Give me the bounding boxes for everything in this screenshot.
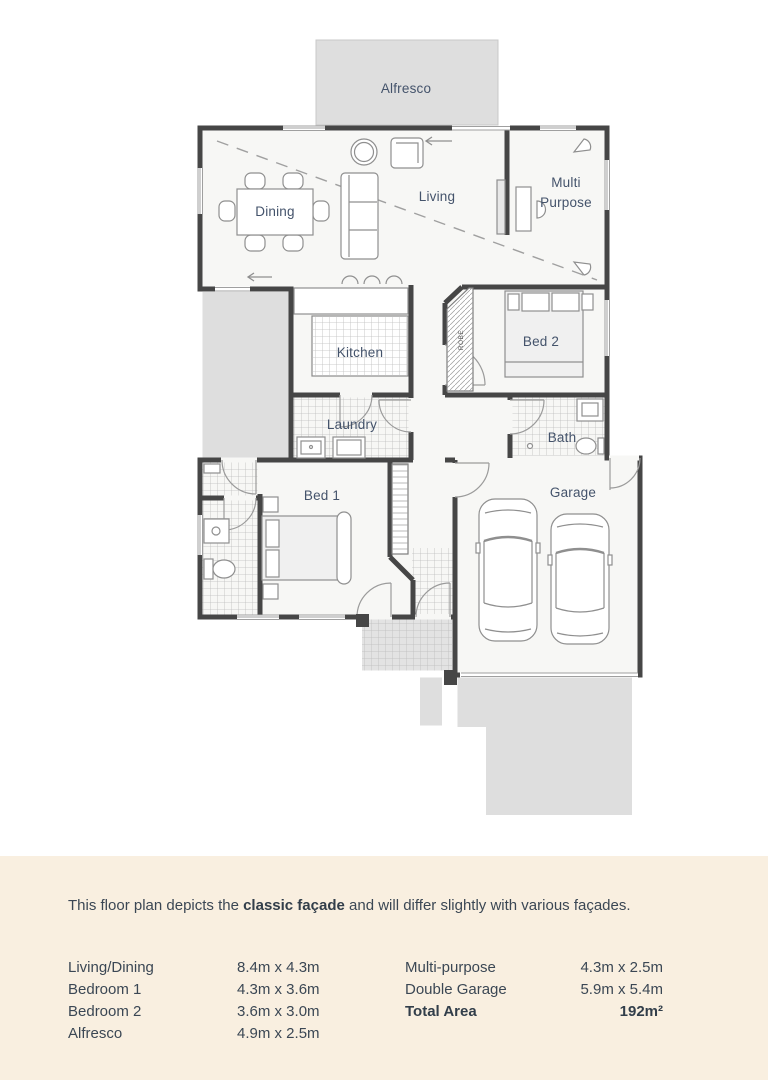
page: { "floorplan": { "rooms": { "alfresco": … <box>0 0 768 1080</box>
dimension-row-living-dining: Living/Dining 8.4m x 4.3m <box>68 957 320 979</box>
linen-cupboard <box>392 464 408 554</box>
dimension-value: 4.3m x 3.6m <box>237 979 320 1001</box>
dimension-label: Bedroom 1 <box>68 979 237 1001</box>
label-dining: Dining <box>255 204 294 219</box>
dimension-value: 3.6m x 3.0m <box>237 1001 320 1023</box>
disclaimer-highlight: classic façade <box>243 897 345 914</box>
dimension-label-total-area: Total Area <box>405 1001 520 1023</box>
porch-pier-1 <box>356 614 369 627</box>
dimension-row-total-area: Total Area 192m² <box>405 1001 663 1023</box>
dimension-row-alfresco: Alfresco 4.9m x 2.5m <box>68 1023 320 1045</box>
label-kitchen: Kitchen <box>337 345 383 360</box>
porch-area <box>362 620 452 671</box>
dimensions-left-column: Living/Dining 8.4m x 4.3m Bedroom 1 4.3m… <box>68 957 320 1045</box>
label-multi: Multi <box>551 175 581 190</box>
laundry-tub <box>297 437 325 458</box>
path-area <box>420 678 442 726</box>
washing-machine <box>333 437 365 458</box>
side-yard-area <box>203 292 289 458</box>
window-top-dining <box>283 126 325 131</box>
dimension-label: Alfresco <box>68 1023 237 1045</box>
sofa <box>341 173 378 259</box>
garage-door-opening <box>460 673 638 678</box>
label-bed2: Bed 2 <box>523 334 559 349</box>
window-ensuite-left <box>198 515 203 555</box>
dimension-row-multi-purpose: Multi-purpose 4.3m x 2.5m <box>405 957 663 979</box>
label-bath: Bath <box>548 430 577 445</box>
armchair <box>391 138 423 168</box>
dimension-label: Double Garage <box>405 979 520 1001</box>
label-laundry: Laundry <box>327 417 377 432</box>
vestibule-shelf <box>204 464 220 473</box>
label-living: Living <box>419 189 455 204</box>
dimension-value: 5.9m x 5.4m <box>520 979 663 1001</box>
dimension-label: Multi-purpose <box>405 957 520 979</box>
floor-plan-drawing: Alfresco Dining Living Multi Purpose Kit… <box>0 0 768 856</box>
label-alfresco: Alfresco <box>381 81 431 96</box>
dimension-value: 4.3m x 2.5m <box>520 957 663 979</box>
ensuite-toilet <box>204 559 235 579</box>
disclaimer-suffix: and will differ slightly with various fa… <box>345 897 631 914</box>
bath-toilet <box>576 438 604 454</box>
disclaimer-prefix: This floor plan depicts the <box>68 897 243 914</box>
window-dining-left <box>198 168 203 214</box>
dimension-label: Living/Dining <box>68 957 237 979</box>
window-bed1-bottom-2 <box>299 615 345 620</box>
window-bed1-bottom-1 <box>237 615 279 620</box>
floor-plan: Alfresco Dining Living Multi Purpose Kit… <box>0 0 768 856</box>
footer: This floor plan depicts the classic faça… <box>0 856 768 1080</box>
dimensions-right-column: Multi-purpose 4.3m x 2.5m Double Garage … <box>405 957 663 1023</box>
dimension-row-double-garage: Double Garage 5.9m x 5.4m <box>405 979 663 1001</box>
car-1 <box>476 499 540 641</box>
dimension-value-total-area: 192m² <box>520 1001 663 1023</box>
shower-drain <box>528 444 533 449</box>
sliding-door-living <box>452 126 510 131</box>
label-bed1: Bed 1 <box>304 488 340 503</box>
ensuite-basin <box>204 519 229 543</box>
disclaimer-text: This floor plan depicts the classic faça… <box>68 896 631 915</box>
window-bed2-right <box>605 300 610 356</box>
kitchen-counter <box>294 288 408 314</box>
car-2 <box>548 514 612 644</box>
label-garage: Garage <box>550 485 596 500</box>
label-robe: ROBE <box>458 330 465 351</box>
tv-unit <box>497 180 505 234</box>
driveway-area <box>458 678 633 816</box>
dimension-value: 4.9m x 2.5m <box>237 1023 320 1045</box>
label-purpose: Purpose <box>540 195 592 210</box>
dimension-label: Bedroom 2 <box>68 1001 237 1023</box>
dimension-row-bedroom-1: Bedroom 1 4.3m x 3.6m <box>68 979 320 1001</box>
sliding-door-dining <box>215 287 250 292</box>
porch-pier-2 <box>444 670 457 685</box>
window-multi-right <box>605 160 610 210</box>
bath-basin <box>577 399 603 421</box>
dimension-value: 8.4m x 4.3m <box>237 957 320 979</box>
dimension-row-bedroom-2: Bedroom 2 3.6m x 3.0m <box>68 1001 320 1023</box>
window-top-multi <box>540 126 576 131</box>
